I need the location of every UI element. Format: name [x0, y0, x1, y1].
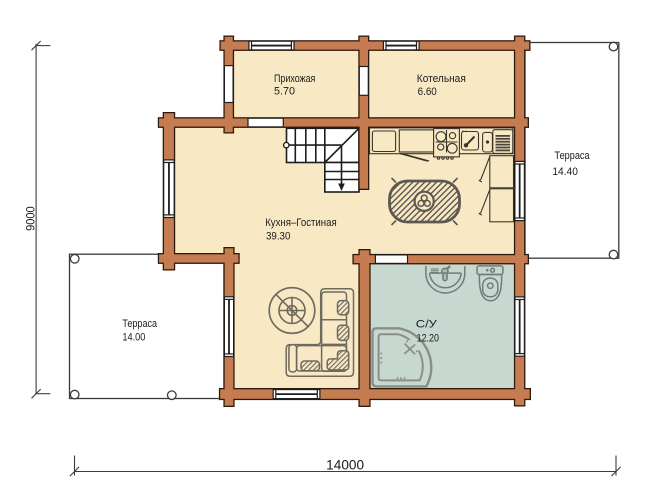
svg-text:39.30: 39.30 [266, 231, 290, 243]
svg-text:14.40: 14.40 [552, 166, 578, 178]
svg-text:5.70: 5.70 [274, 86, 295, 98]
svg-text:Котельная: Котельная [417, 73, 466, 85]
svg-text:9000: 9000 [26, 206, 38, 231]
svg-text:6.60: 6.60 [418, 86, 437, 98]
svg-text:Прихожая: Прихожая [274, 73, 315, 85]
svg-text:Кухня–Гостиная: Кухня–Гостиная [265, 217, 337, 229]
svg-text:С/У: С/У [416, 319, 438, 331]
svg-text:14.00: 14.00 [122, 332, 145, 344]
svg-text:Терраса: Терраса [122, 318, 157, 330]
svg-text:Терраса: Терраса [555, 150, 591, 162]
svg-text:12.20: 12.20 [417, 332, 439, 344]
svg-text:14000: 14000 [326, 458, 364, 473]
